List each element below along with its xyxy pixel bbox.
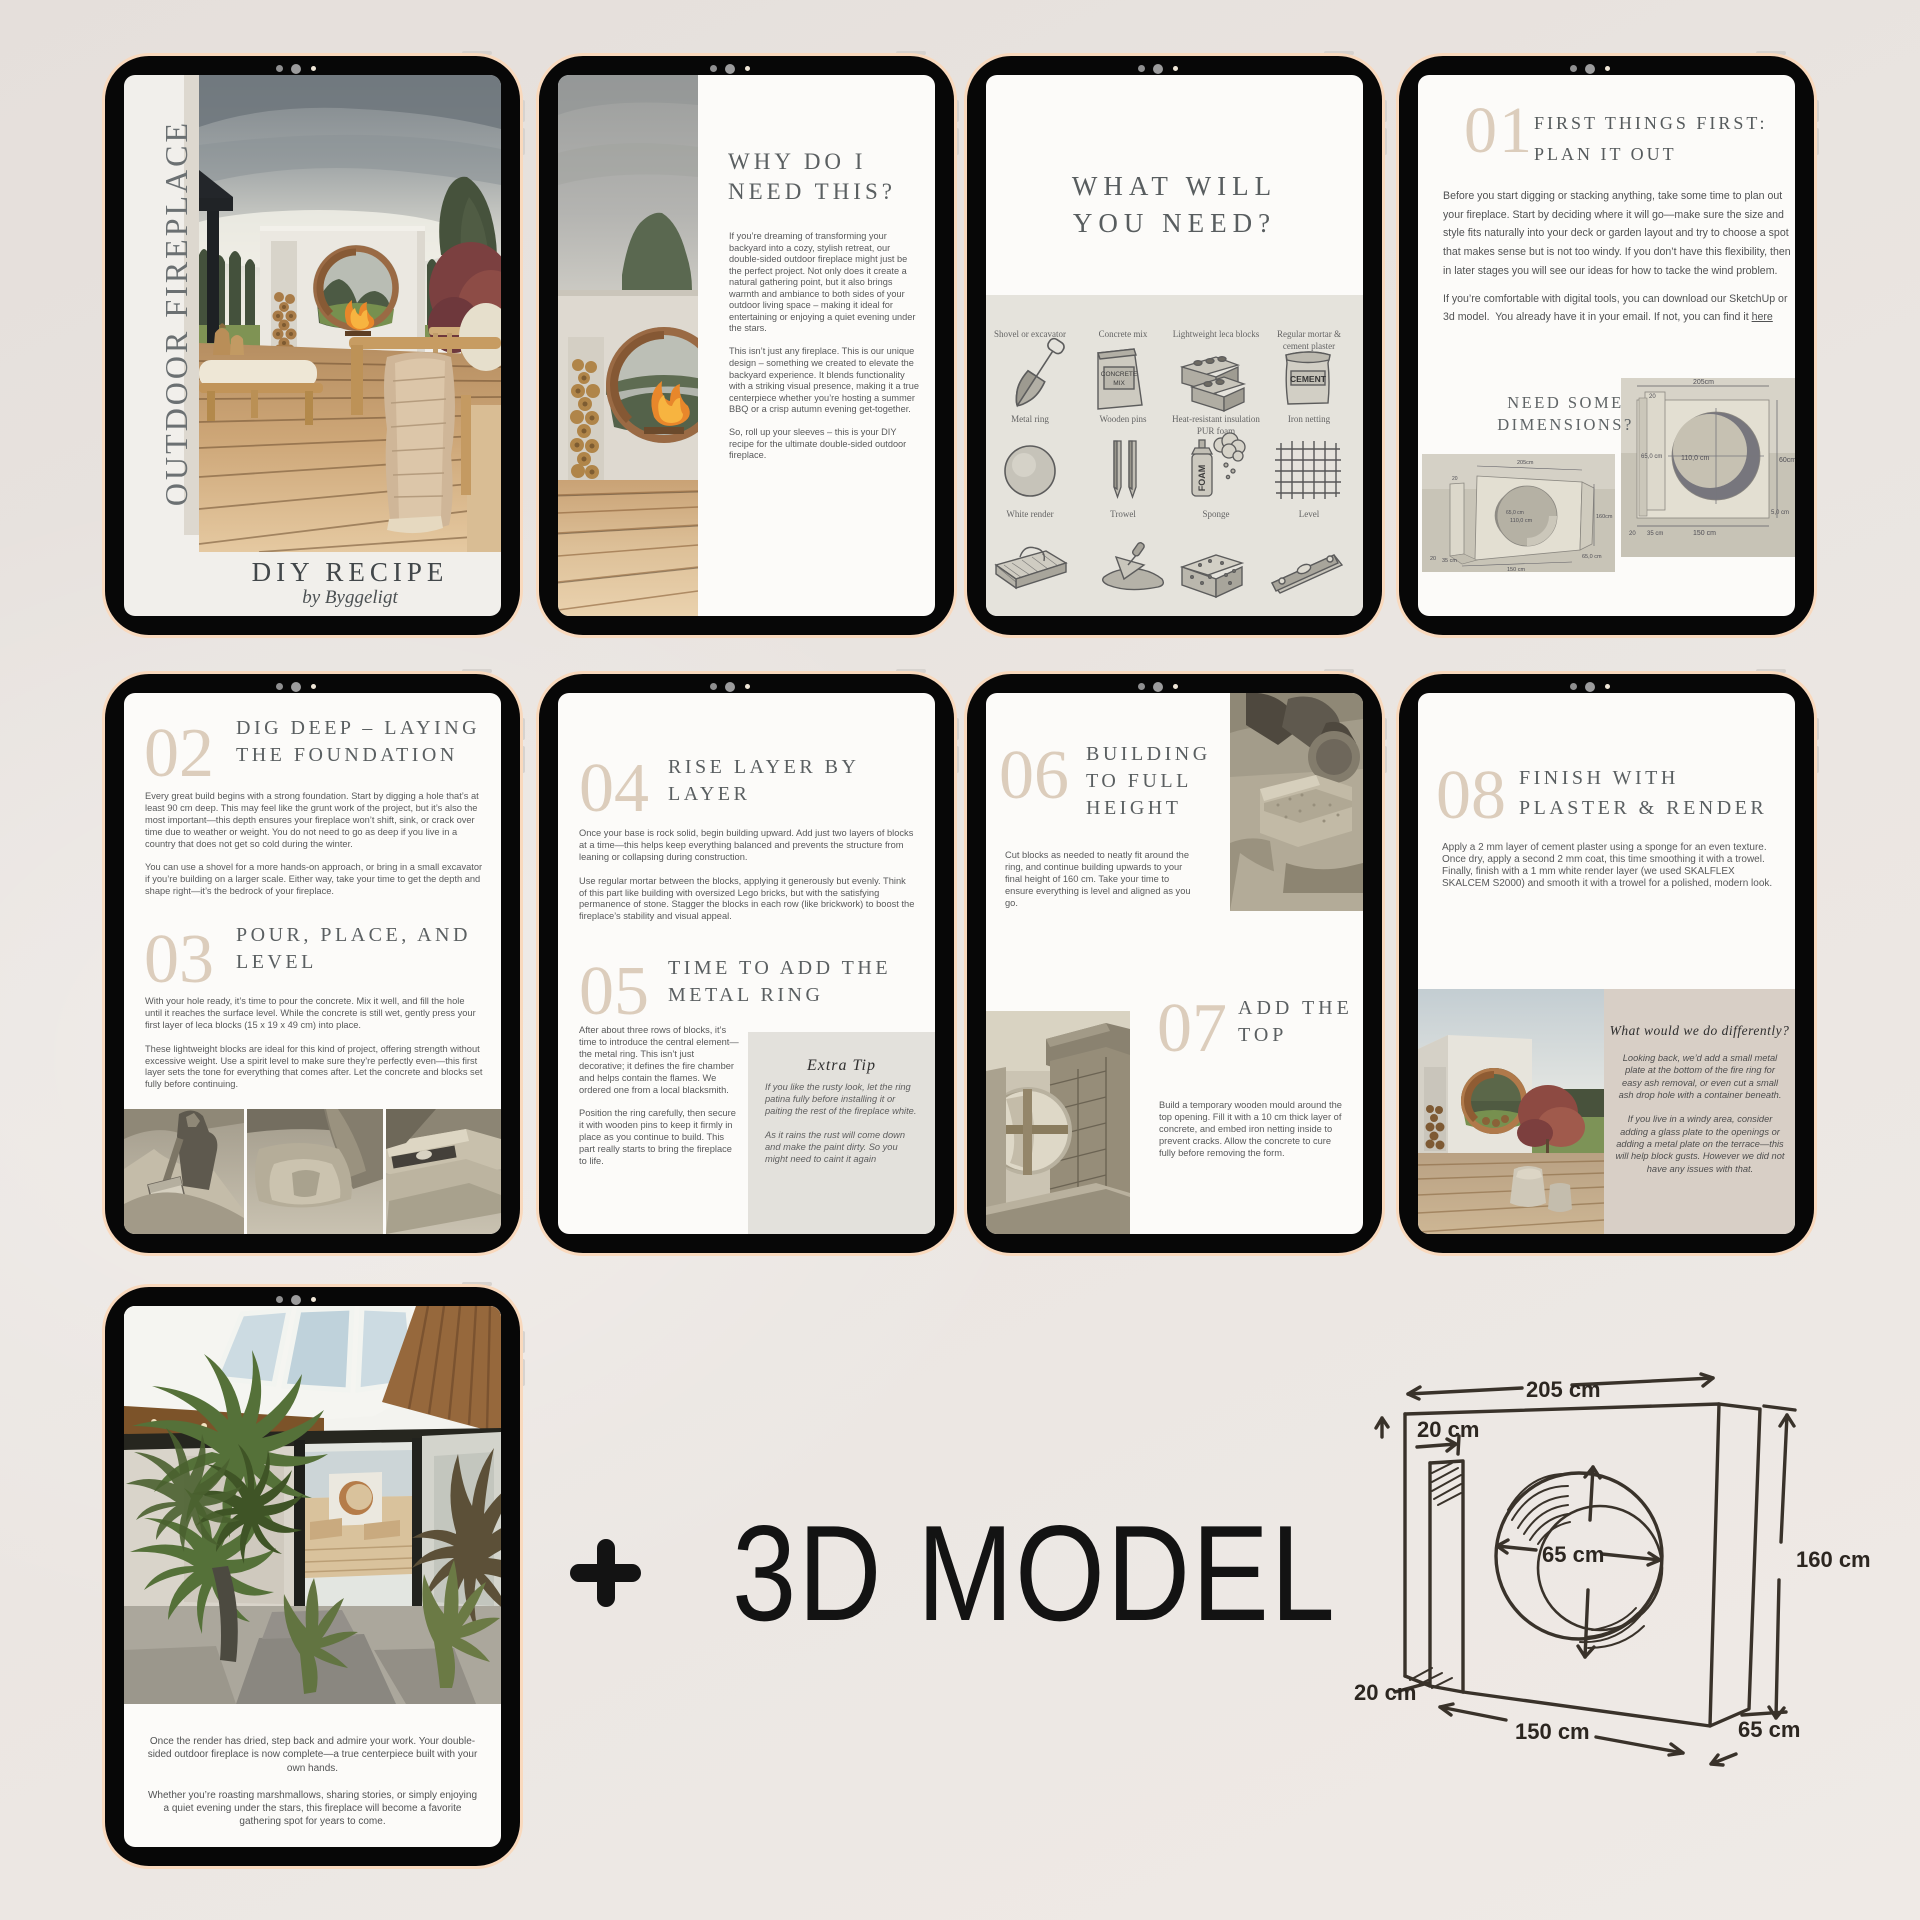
svg-text:White render: White render — [1006, 509, 1053, 519]
svg-text:Wooden pins: Wooden pins — [1099, 414, 1147, 424]
svg-text:20 cm: 20 cm — [1354, 1680, 1416, 1705]
svg-text:150 cm: 150 cm — [1507, 567, 1525, 572]
svg-text:65 cm: 65 cm — [1542, 1542, 1604, 1567]
svg-text:20 cm: 20 cm — [1417, 1417, 1479, 1442]
svg-text:cement plaster: cement plaster — [1283, 341, 1335, 351]
svg-text:60cm: 60cm — [1779, 457, 1795, 464]
svg-text:35 cm: 35 cm — [1442, 558, 1457, 564]
svg-text:110,0 cm: 110,0 cm — [1681, 455, 1709, 462]
svg-text:5,0 cm: 5,0 cm — [1771, 510, 1789, 516]
svg-text:150 cm: 150 cm — [1693, 530, 1716, 537]
svg-text:Lightweight leca blocks: Lightweight leca blocks — [1173, 329, 1260, 339]
svg-text:CONCRETE: CONCRETE — [1101, 371, 1138, 378]
svg-text:160cm: 160cm — [1596, 514, 1613, 520]
svg-text:35 cm: 35 cm — [1647, 531, 1663, 537]
svg-text:Concrete mix: Concrete mix — [1099, 329, 1148, 339]
svg-text:MIX: MIX — [1113, 380, 1125, 387]
svg-text:Heat-resistant insulation: Heat-resistant insulation — [1172, 414, 1260, 424]
svg-text:205 cm: 205 cm — [1526, 1377, 1601, 1402]
svg-text:20: 20 — [1452, 476, 1458, 482]
svg-text:Metal ring: Metal ring — [1011, 414, 1049, 424]
svg-text:CEMENT: CEMENT — [1290, 374, 1327, 384]
svg-text:65 cm: 65 cm — [1738, 1717, 1800, 1742]
svg-text:205cm: 205cm — [1517, 460, 1534, 466]
svg-text:205cm: 205cm — [1693, 379, 1714, 386]
svg-text:Shovel or excavator: Shovel or excavator — [994, 329, 1066, 339]
svg-text:FOAM: FOAM — [1197, 465, 1207, 492]
svg-text:160 cm: 160 cm — [1796, 1547, 1871, 1572]
svg-text:110,0 cm: 110,0 cm — [1510, 518, 1533, 524]
svg-text:20: 20 — [1629, 531, 1636, 537]
svg-text:65,0 cm: 65,0 cm — [1506, 510, 1524, 516]
svg-text:Sponge: Sponge — [1203, 509, 1230, 519]
svg-text:65,0 cm: 65,0 cm — [1641, 454, 1662, 460]
svg-text:Trowel: Trowel — [1110, 509, 1136, 519]
svg-text:Regular mortar &: Regular mortar & — [1277, 329, 1341, 339]
svg-text:Level: Level — [1299, 509, 1320, 519]
svg-text:Iron netting: Iron netting — [1288, 414, 1331, 424]
svg-text:150 cm: 150 cm — [1515, 1719, 1590, 1744]
svg-text:65,0 cm: 65,0 cm — [1582, 554, 1602, 560]
svg-text:20: 20 — [1430, 556, 1436, 562]
